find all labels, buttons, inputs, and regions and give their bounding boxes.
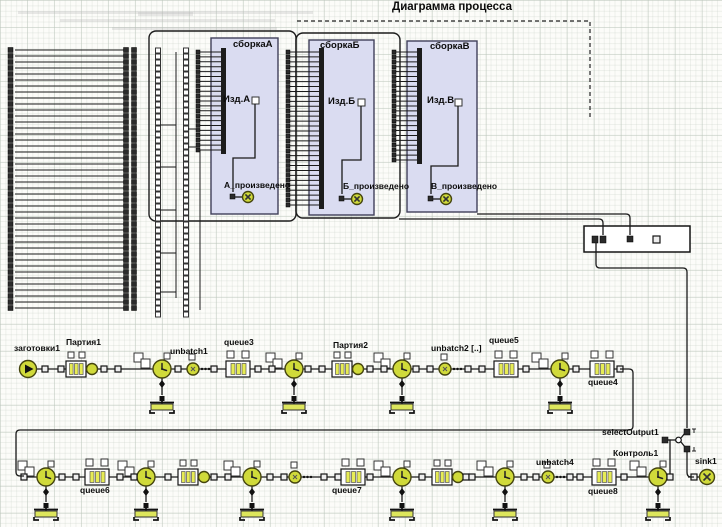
label-queue6: queue6 bbox=[80, 486, 110, 495]
block-queue5[interactable] bbox=[494, 351, 518, 377]
port bbox=[381, 366, 387, 372]
port bbox=[419, 474, 425, 480]
produced-v-sink-icon[interactable] bbox=[441, 194, 452, 205]
block-selectoutput1[interactable] bbox=[662, 429, 696, 452]
port bbox=[59, 474, 65, 480]
label-unbatch1: unbatch1 bbox=[170, 347, 208, 356]
port bbox=[269, 366, 275, 372]
product-b-label: Изд.Б bbox=[328, 97, 355, 107]
label-unbatch2: unbatch2 [..] bbox=[431, 344, 482, 353]
resource-arrow-icon bbox=[43, 488, 49, 496]
label-queue5: queue5 bbox=[489, 336, 519, 345]
block-service4-resource-pool[interactable] bbox=[548, 396, 572, 413]
block-queue8[interactable] bbox=[592, 459, 616, 485]
resource-arrow-icon bbox=[399, 380, 405, 388]
block-service1-resource-pool[interactable] bbox=[150, 396, 174, 413]
port bbox=[211, 474, 217, 480]
block-unbatch2[interactable] bbox=[439, 354, 462, 375]
resource-arrow-icon bbox=[249, 488, 255, 496]
port bbox=[42, 366, 48, 372]
port bbox=[367, 366, 373, 372]
port bbox=[211, 366, 217, 372]
produced-v-label: В_произведено bbox=[431, 182, 497, 191]
block-batch3[interactable] bbox=[178, 460, 210, 485]
resource-arrow-icon bbox=[291, 380, 297, 388]
port bbox=[305, 366, 311, 372]
port bbox=[21, 474, 27, 480]
block-sink1[interactable] bbox=[691, 470, 715, 485]
block-service5-resource-pool[interactable] bbox=[34, 503, 58, 520]
block-service3[interactable] bbox=[374, 353, 411, 378]
block-queue6[interactable] bbox=[85, 459, 109, 485]
block-service7-resource-pool[interactable] bbox=[240, 503, 264, 520]
label-selectoutput: selectOutput1 bbox=[602, 428, 659, 437]
port bbox=[667, 474, 673, 480]
port bbox=[175, 366, 181, 372]
port bbox=[225, 474, 231, 480]
produced-b-label: Б_произведено bbox=[343, 182, 409, 191]
block-unbatch1[interactable] bbox=[187, 354, 210, 375]
block-service8-resource-pool[interactable] bbox=[390, 503, 414, 520]
port bbox=[521, 474, 527, 480]
label-control: Контроль1 bbox=[613, 449, 658, 458]
port bbox=[413, 366, 419, 372]
port bbox=[255, 366, 261, 372]
faded-artifacts bbox=[18, 11, 313, 30]
label-queue3: queue3 bbox=[224, 338, 254, 347]
block-service2-resource-pool[interactable] bbox=[282, 396, 306, 413]
block-source-zagotovki1[interactable] bbox=[20, 361, 37, 378]
resource-arrow-icon bbox=[159, 380, 165, 388]
label-unbatch4: unbatch4 bbox=[536, 458, 574, 467]
port bbox=[115, 366, 121, 372]
produced-a-label: А_произведено bbox=[224, 181, 290, 190]
block-queue4[interactable] bbox=[590, 351, 614, 377]
model-canvas[interactable]: Диаграмма процесса сборкаА сборкаБ сборк… bbox=[0, 0, 722, 527]
port-ladders bbox=[156, 48, 201, 317]
block-queue7[interactable] bbox=[341, 459, 365, 485]
port bbox=[281, 474, 287, 480]
assembly-b-title: сборкаБ bbox=[320, 41, 360, 51]
block-service6-resource-pool[interactable] bbox=[134, 503, 158, 520]
block-service1[interactable] bbox=[134, 353, 171, 378]
flow-row-1 bbox=[20, 351, 624, 413]
product-v-label: Изд.В bbox=[427, 96, 454, 106]
resource-arrow-icon bbox=[399, 488, 405, 496]
block-batch-partiya2[interactable] bbox=[332, 352, 364, 377]
port bbox=[73, 474, 79, 480]
port bbox=[165, 474, 171, 480]
port bbox=[577, 474, 583, 480]
block-batch4[interactable] bbox=[432, 460, 464, 485]
port bbox=[469, 474, 475, 480]
block-service4[interactable] bbox=[532, 353, 569, 378]
label-batch2: Партия2 bbox=[333, 341, 368, 350]
resource-arrow-icon bbox=[143, 488, 149, 496]
port bbox=[321, 474, 327, 480]
product-a-label: Изд.А bbox=[223, 95, 250, 105]
label-queue4: queue4 bbox=[588, 378, 618, 387]
label-queue8: queue8 bbox=[588, 487, 618, 496]
port bbox=[463, 474, 469, 480]
block-batch-partiya1[interactable] bbox=[66, 352, 98, 377]
port bbox=[335, 474, 341, 480]
sink1-icon[interactable] bbox=[700, 470, 715, 485]
block-service3-resource-pool[interactable] bbox=[390, 396, 414, 413]
port bbox=[573, 366, 579, 372]
port bbox=[131, 474, 137, 480]
block-service-kontrol1[interactable] bbox=[630, 461, 667, 486]
resource-arrow-icon bbox=[502, 488, 508, 496]
port bbox=[523, 366, 529, 372]
port bbox=[58, 366, 64, 372]
port bbox=[567, 474, 573, 480]
port bbox=[427, 366, 433, 372]
assembly-v-title: сборкаВ bbox=[430, 42, 470, 52]
block-queue3[interactable] bbox=[226, 351, 250, 377]
port bbox=[319, 366, 325, 372]
block-service-kontrol1-resource-pool[interactable] bbox=[646, 503, 670, 520]
resource-arrow-icon bbox=[557, 380, 563, 388]
connector-bus bbox=[8, 48, 137, 311]
port bbox=[465, 366, 471, 372]
block-service9[interactable] bbox=[477, 461, 514, 486]
port bbox=[621, 474, 627, 480]
port bbox=[367, 474, 373, 480]
port bbox=[101, 366, 107, 372]
resource-arrow-icon bbox=[655, 488, 661, 496]
port bbox=[267, 474, 273, 480]
produced-b-sink-icon[interactable] bbox=[352, 194, 363, 205]
block-unbatch3[interactable] bbox=[289, 462, 312, 483]
block-service9-resource-pool[interactable] bbox=[493, 503, 517, 520]
page-title: Диаграмма процесса bbox=[392, 1, 512, 13]
label-queue7: queue7 bbox=[332, 486, 362, 495]
port bbox=[533, 474, 539, 480]
port bbox=[479, 366, 485, 372]
port bbox=[117, 474, 123, 480]
block-service8[interactable] bbox=[374, 461, 411, 486]
assembly-a-title: сборкаА bbox=[233, 40, 273, 50]
label-sink: sink1 bbox=[695, 457, 717, 466]
produced-a-sink-icon[interactable] bbox=[243, 192, 254, 203]
label-batch1: Партия1 bbox=[66, 338, 101, 347]
collector-block[interactable] bbox=[584, 226, 690, 252]
label-source: заготовки1 bbox=[14, 344, 60, 353]
